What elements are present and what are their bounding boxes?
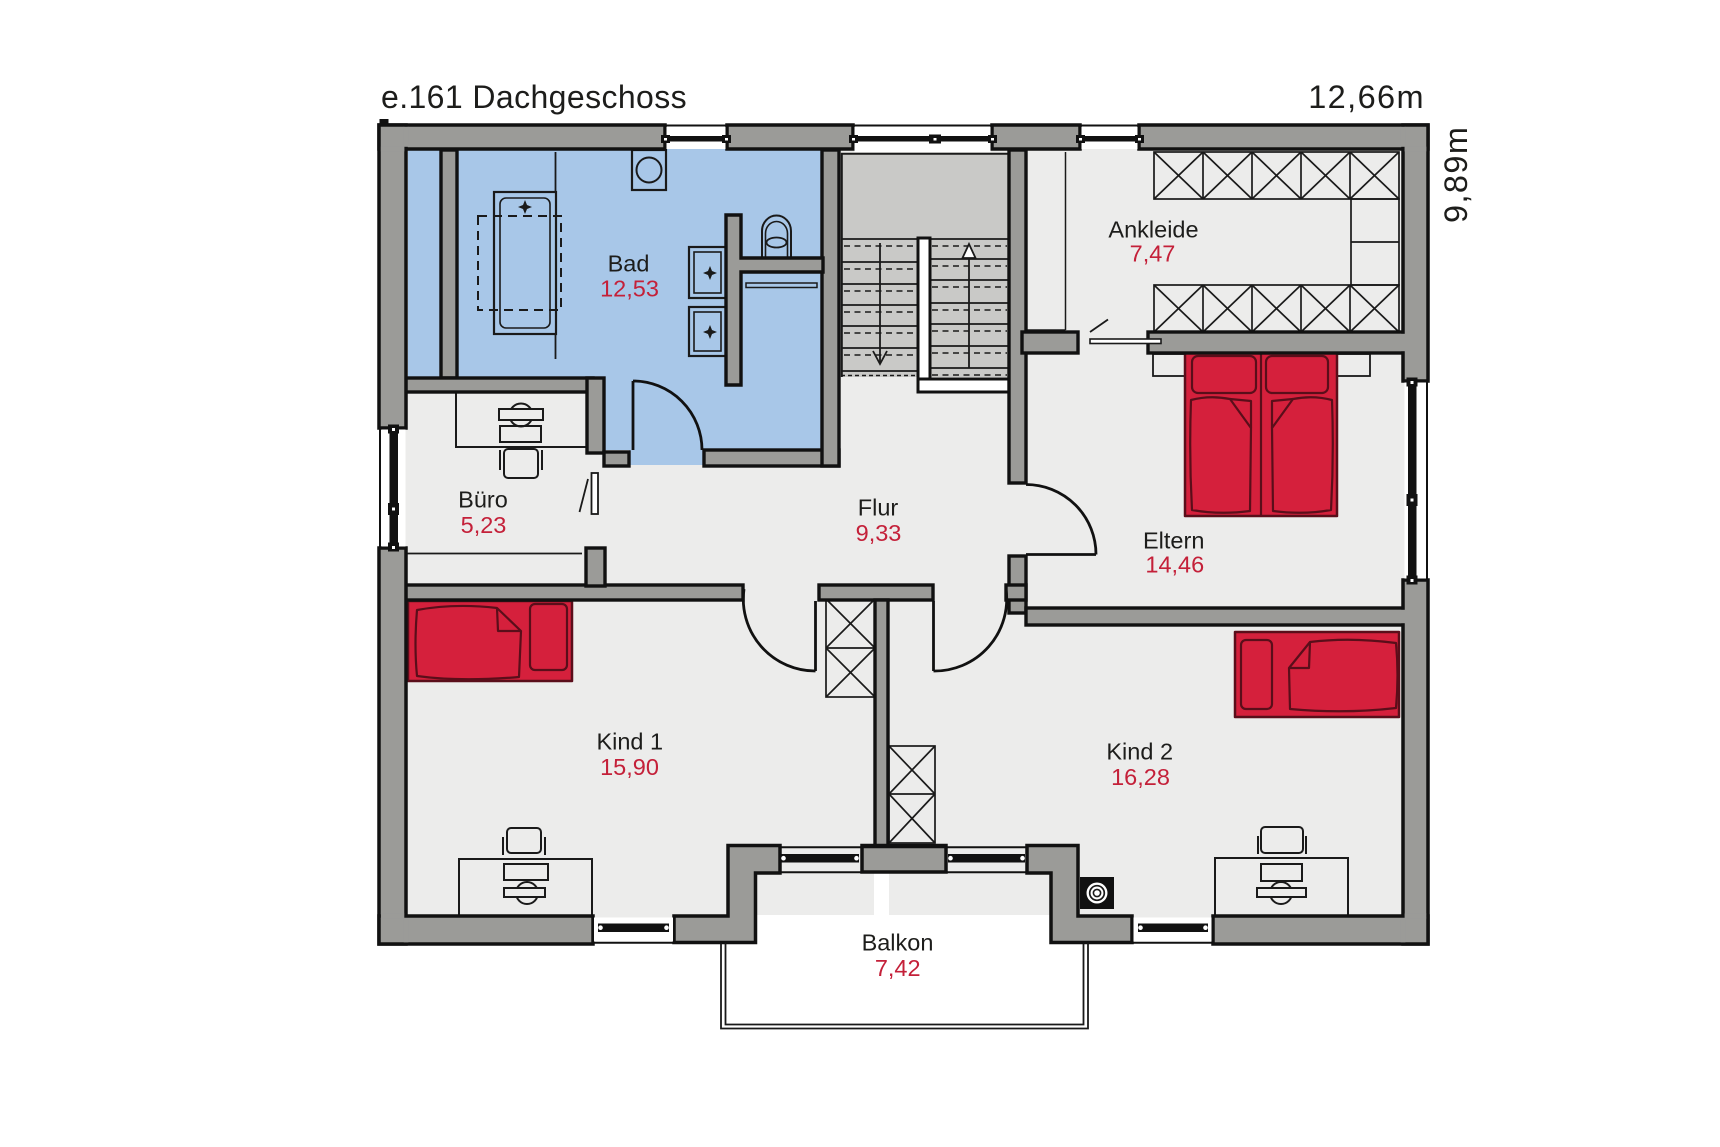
svg-text:12,53: 12,53 xyxy=(600,276,659,302)
svg-text:9,33: 9,33 xyxy=(856,520,902,546)
svg-text:7,42: 7,42 xyxy=(875,955,921,981)
svg-text:14,46: 14,46 xyxy=(1145,552,1204,578)
svg-text:15,90: 15,90 xyxy=(600,754,659,780)
svg-text:5,23: 5,23 xyxy=(461,512,507,538)
svg-text:16,28: 16,28 xyxy=(1111,764,1170,790)
svg-text:7,47: 7,47 xyxy=(1130,241,1176,267)
svg-text:Ankleide: Ankleide xyxy=(1108,217,1198,243)
svg-text:Bad: Bad xyxy=(608,251,650,277)
svg-text:e.161 Dachgeschoss: e.161 Dachgeschoss xyxy=(381,79,687,115)
svg-text:Eltern: Eltern xyxy=(1143,527,1204,553)
svg-text:Kind 2: Kind 2 xyxy=(1106,739,1173,765)
svg-text:9,89m: 9,89m xyxy=(1438,126,1474,223)
svg-text:Flur: Flur xyxy=(858,495,899,521)
svg-text:Büro: Büro xyxy=(458,487,508,513)
svg-text:12,66m: 12,66m xyxy=(1308,79,1425,115)
svg-text:Kind 1: Kind 1 xyxy=(596,728,663,754)
svg-text:Balkon: Balkon xyxy=(862,930,934,956)
